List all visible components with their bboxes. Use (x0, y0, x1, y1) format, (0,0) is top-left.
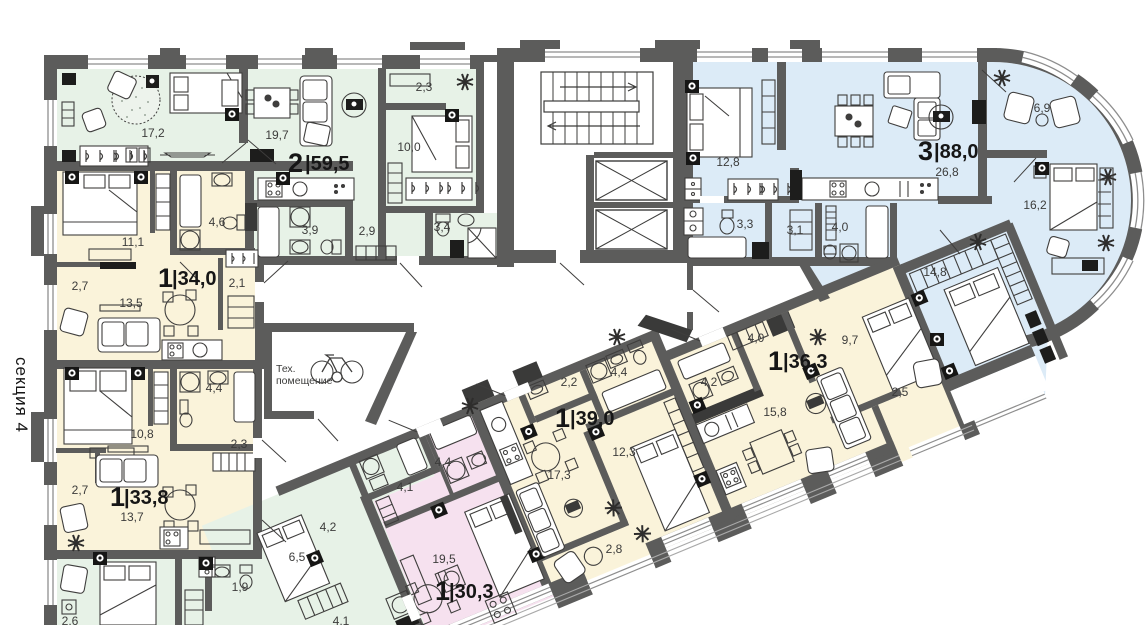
svg-text:2,8: 2,8 (606, 542, 623, 556)
svg-text:4,4: 4,4 (611, 365, 628, 379)
svg-text:4,6: 4,6 (209, 215, 226, 229)
svg-text:|39,0: |39,0 (570, 408, 615, 430)
svg-text:|36,3: |36,3 (783, 351, 828, 373)
svg-text:|30,3: |30,3 (449, 581, 494, 603)
svg-text:1: 1 (555, 403, 570, 433)
svg-text:1: 1 (435, 576, 450, 606)
svg-text:10,8: 10,8 (130, 427, 154, 441)
svg-text:19,7: 19,7 (265, 128, 289, 142)
svg-text:2,1: 2,1 (229, 276, 246, 290)
svg-text:19,5: 19,5 (432, 552, 456, 566)
svg-text:2,2: 2,2 (561, 375, 578, 389)
svg-text:2,7: 2,7 (72, 279, 89, 293)
svg-text:3,1: 3,1 (787, 223, 804, 237)
svg-text:секция 4: секция 4 (12, 357, 31, 433)
svg-text:|33,8: |33,8 (124, 487, 169, 509)
svg-text:3: 3 (918, 136, 933, 166)
svg-text:Тех.: Тех. (276, 363, 296, 375)
svg-text:4,2: 4,2 (701, 375, 718, 389)
svg-text:2,5: 2,5 (892, 385, 909, 399)
svg-text:3,3: 3,3 (737, 217, 754, 231)
svg-text:14,8: 14,8 (923, 265, 947, 279)
svg-text:4,0: 4,0 (748, 331, 765, 345)
svg-text:1: 1 (768, 346, 783, 376)
svg-text:1: 1 (110, 482, 125, 512)
svg-text:|59,5: |59,5 (305, 153, 350, 175)
svg-text:6,5: 6,5 (289, 550, 306, 564)
svg-text:16,2: 16,2 (1023, 198, 1047, 212)
svg-text:12,3: 12,3 (612, 445, 636, 459)
svg-text:10,0: 10,0 (397, 140, 421, 154)
svg-text:9,7: 9,7 (842, 333, 859, 347)
svg-text:3,4: 3,4 (434, 220, 451, 234)
svg-text:2,6: 2,6 (62, 614, 79, 625)
svg-text:26,8: 26,8 (935, 165, 959, 179)
svg-text:2: 2 (288, 148, 303, 178)
svg-text:4,4: 4,4 (206, 381, 223, 395)
svg-text:|88,0: |88,0 (934, 141, 979, 163)
svg-text:1,9: 1,9 (232, 580, 249, 594)
svg-text:2,9: 2,9 (359, 224, 376, 238)
svg-text:17,2: 17,2 (141, 126, 165, 140)
svg-text:3,9: 3,9 (302, 223, 319, 237)
svg-text:4,0: 4,0 (832, 220, 849, 234)
svg-text:2,3: 2,3 (416, 80, 433, 94)
svg-text:2,3: 2,3 (231, 437, 248, 451)
svg-text:13,7: 13,7 (120, 510, 144, 524)
svg-text:6,9: 6,9 (1034, 101, 1051, 115)
svg-text:4,4: 4,4 (435, 455, 452, 469)
svg-text:1: 1 (158, 263, 173, 293)
svg-text:17,3: 17,3 (547, 468, 571, 482)
svg-text:12,8: 12,8 (716, 155, 740, 169)
svg-text:помещение: помещение (276, 375, 333, 387)
svg-text:4,1: 4,1 (397, 480, 414, 494)
svg-text:11,1: 11,1 (122, 235, 145, 249)
svg-text:4,2: 4,2 (320, 520, 337, 534)
svg-text:4,1: 4,1 (333, 614, 350, 625)
svg-text:15,8: 15,8 (763, 405, 787, 419)
svg-text:13,5: 13,5 (119, 296, 143, 310)
svg-text:|34,0: |34,0 (172, 268, 217, 290)
svg-text:2,7: 2,7 (72, 483, 89, 497)
